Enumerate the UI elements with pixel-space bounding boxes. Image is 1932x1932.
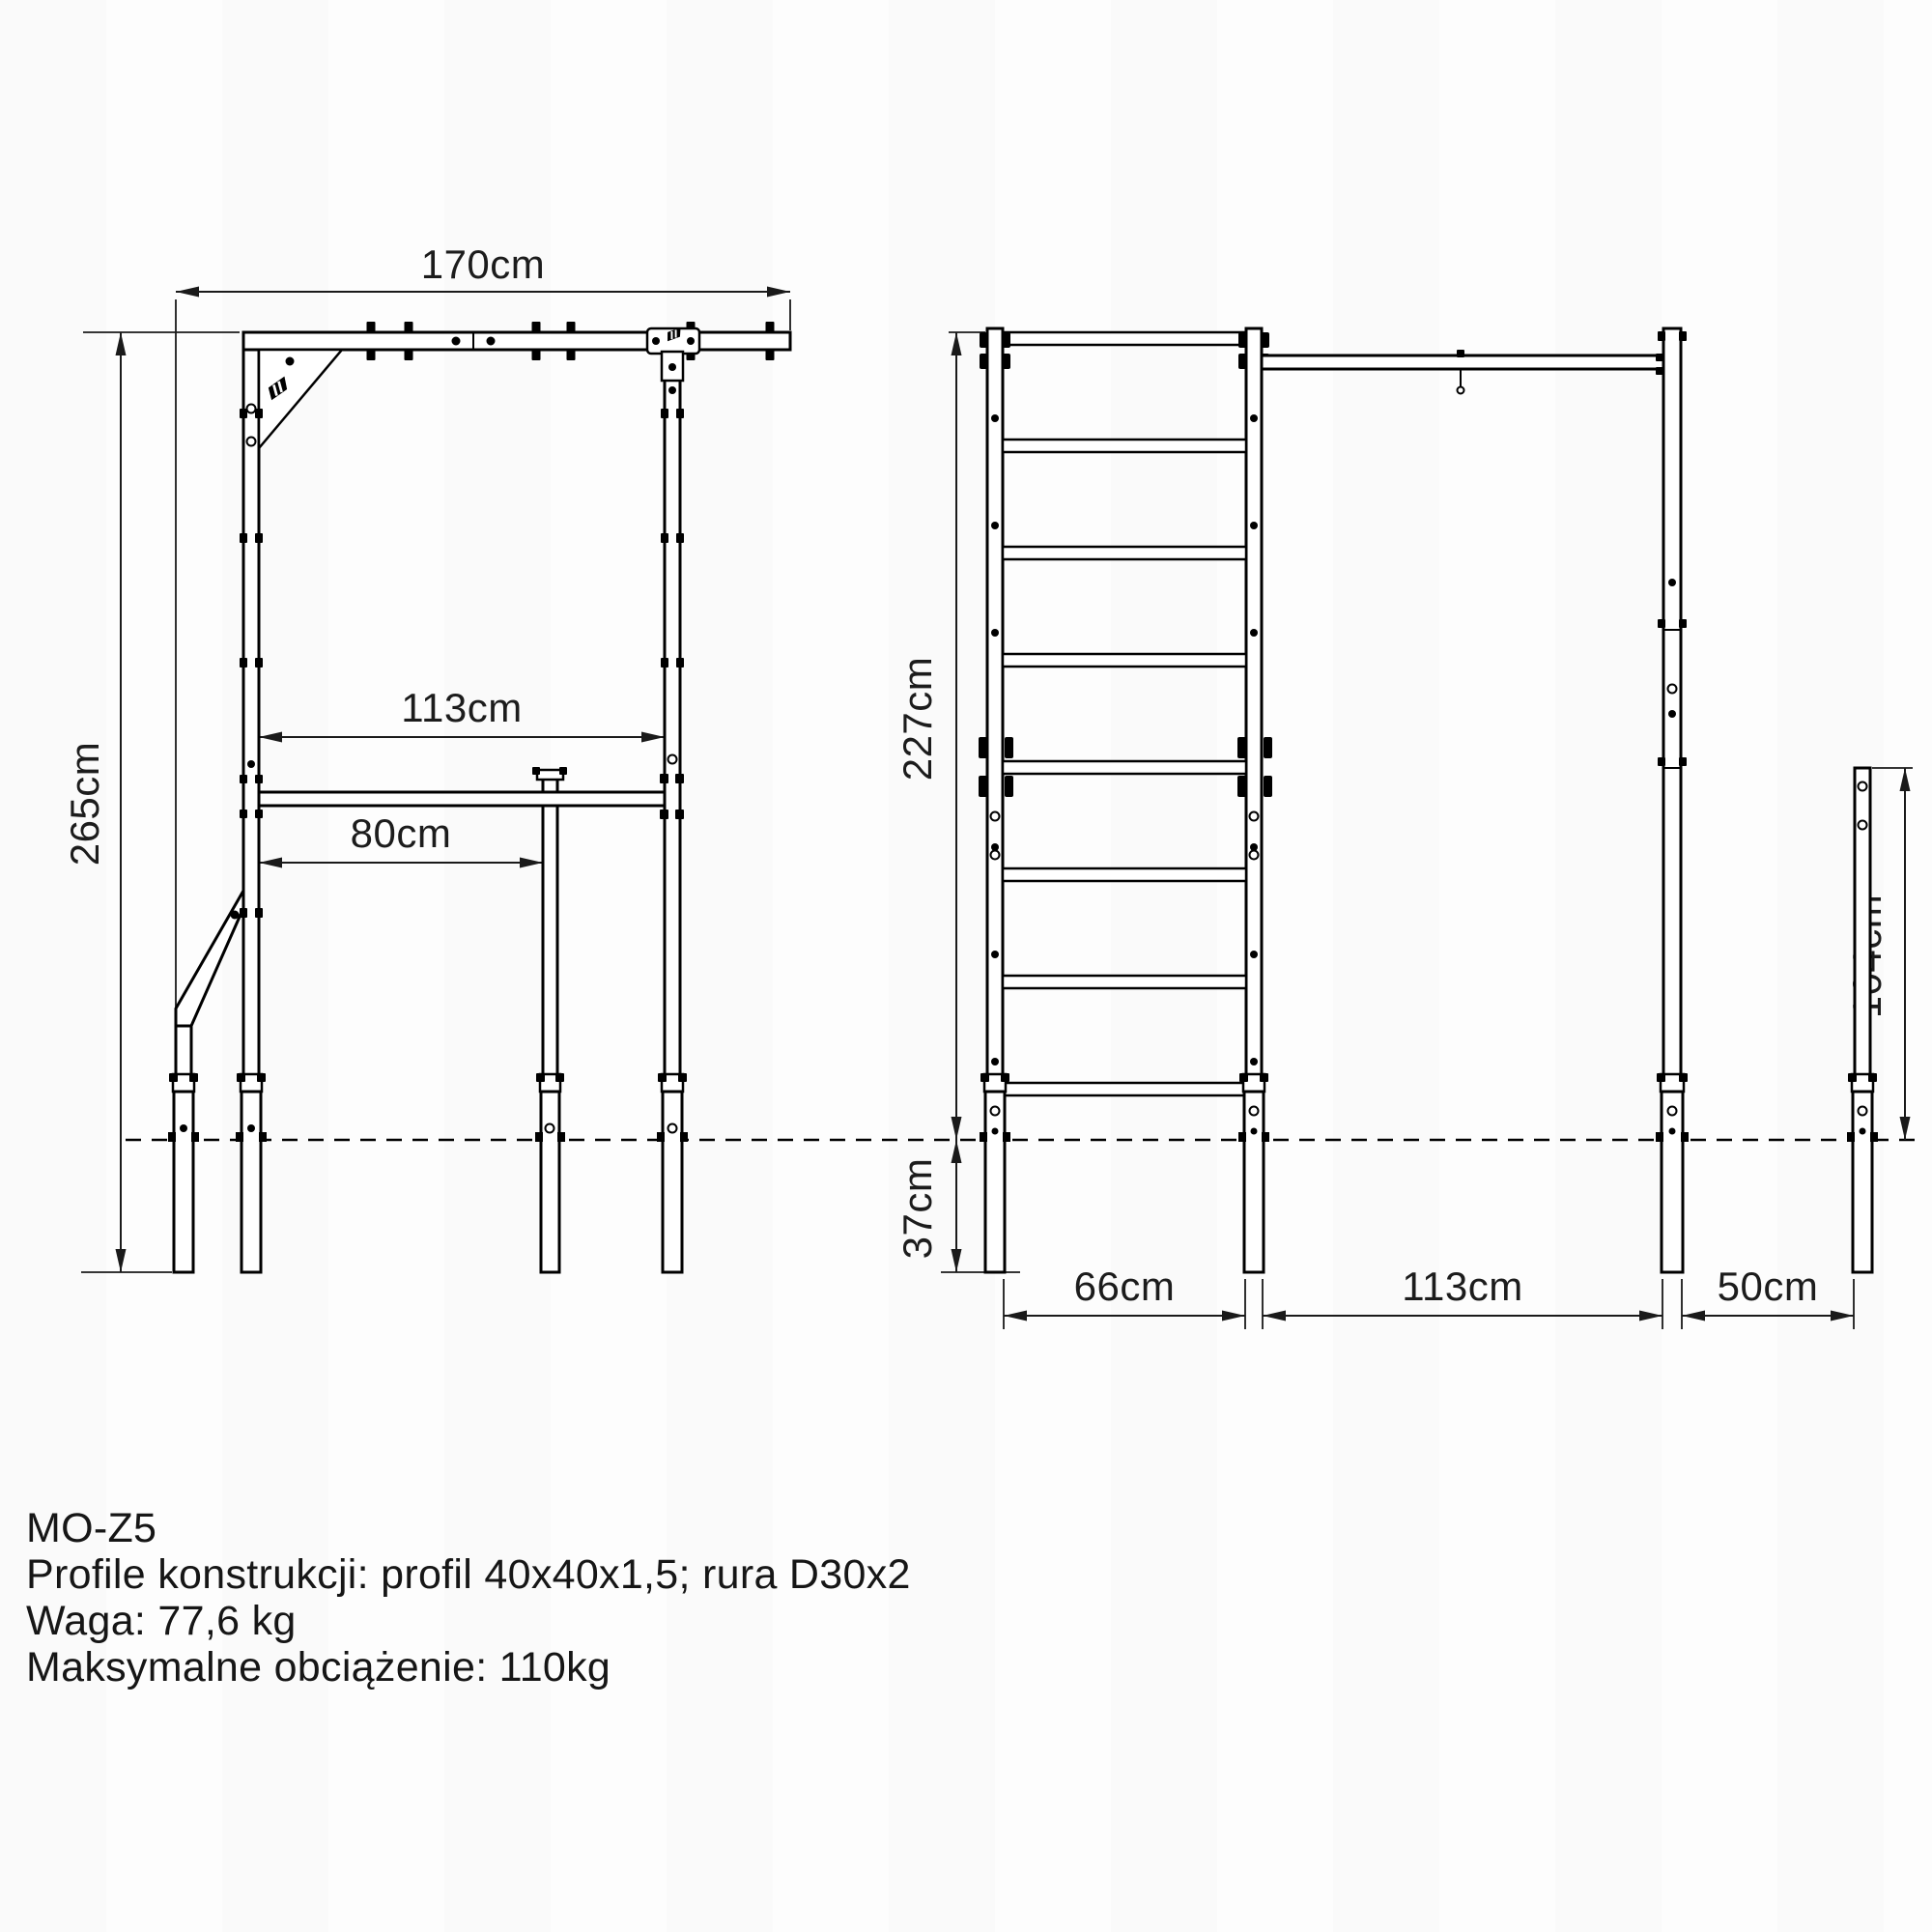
- dim-label-227cm: 227cm: [895, 657, 940, 781]
- front-dip-post-cap: [537, 770, 563, 780]
- front-dip-bar: [259, 792, 665, 806]
- dim-label-50cm: 50cm: [1718, 1264, 1819, 1309]
- drawing-canvas: 170cm 265cm 113cm 80cm: [0, 0, 1932, 1932]
- front-post-fixings: [240, 409, 684, 918]
- dim-rear-offset-50: 50cm: [1682, 1264, 1854, 1329]
- front-top-crossbar: [243, 332, 790, 350]
- dim-label-37cm: 37cm: [895, 1158, 940, 1260]
- side-ground-anchors: [980, 1073, 1878, 1272]
- spec-weight: Waga: 77,6 kg: [26, 1598, 297, 1644]
- technical-drawing-page: 170cm 265cm 113cm 80cm: [0, 0, 1932, 1932]
- dim-label-66cm: 66cm: [1074, 1264, 1176, 1309]
- dim-dip-bar-80: 80cm: [259, 810, 543, 868]
- dim-inner-span-113-front: 113cm: [259, 685, 665, 743]
- dim-label-80cm: 80cm: [351, 810, 452, 856]
- dim-label-113cm-front: 113cm: [401, 685, 522, 730]
- ladder-bolts: [991, 414, 1259, 1065]
- side-view-structure: [979, 328, 1878, 1272]
- dim-ladder-depth-66: 66cm: [1004, 1264, 1245, 1329]
- side-top-tube: [1262, 355, 1663, 369]
- dip-bar-fixings: [240, 755, 684, 820]
- spec-max-load: Maksymalne obciążenie: 110kg: [26, 1644, 611, 1690]
- dim-label-113cm-side: 113cm: [1402, 1264, 1522, 1309]
- dim-frame-depth-113-side: 113cm: [1263, 1264, 1662, 1329]
- front-ground-anchors: [168, 1073, 688, 1272]
- ladder-rungs: [1003, 332, 1246, 1095]
- dim-height-above-ground-227: 227cm: [895, 332, 985, 1140]
- hanging-hook: [1457, 350, 1464, 394]
- dim-label-170cm: 170cm: [421, 241, 546, 287]
- product-model: MO-Z5: [26, 1505, 156, 1551]
- dim-label-265cm: 265cm: [62, 742, 107, 867]
- spec-profiles: Profile konstrukcji: profil 40x40x1,5; r…: [26, 1551, 911, 1598]
- front-view-structure: [168, 322, 790, 1272]
- dim-total-height-265: 265cm: [62, 332, 240, 1272]
- spec-text-block: MO-Z5 Profile konstrukcji: profil 40x40x…: [26, 1505, 911, 1690]
